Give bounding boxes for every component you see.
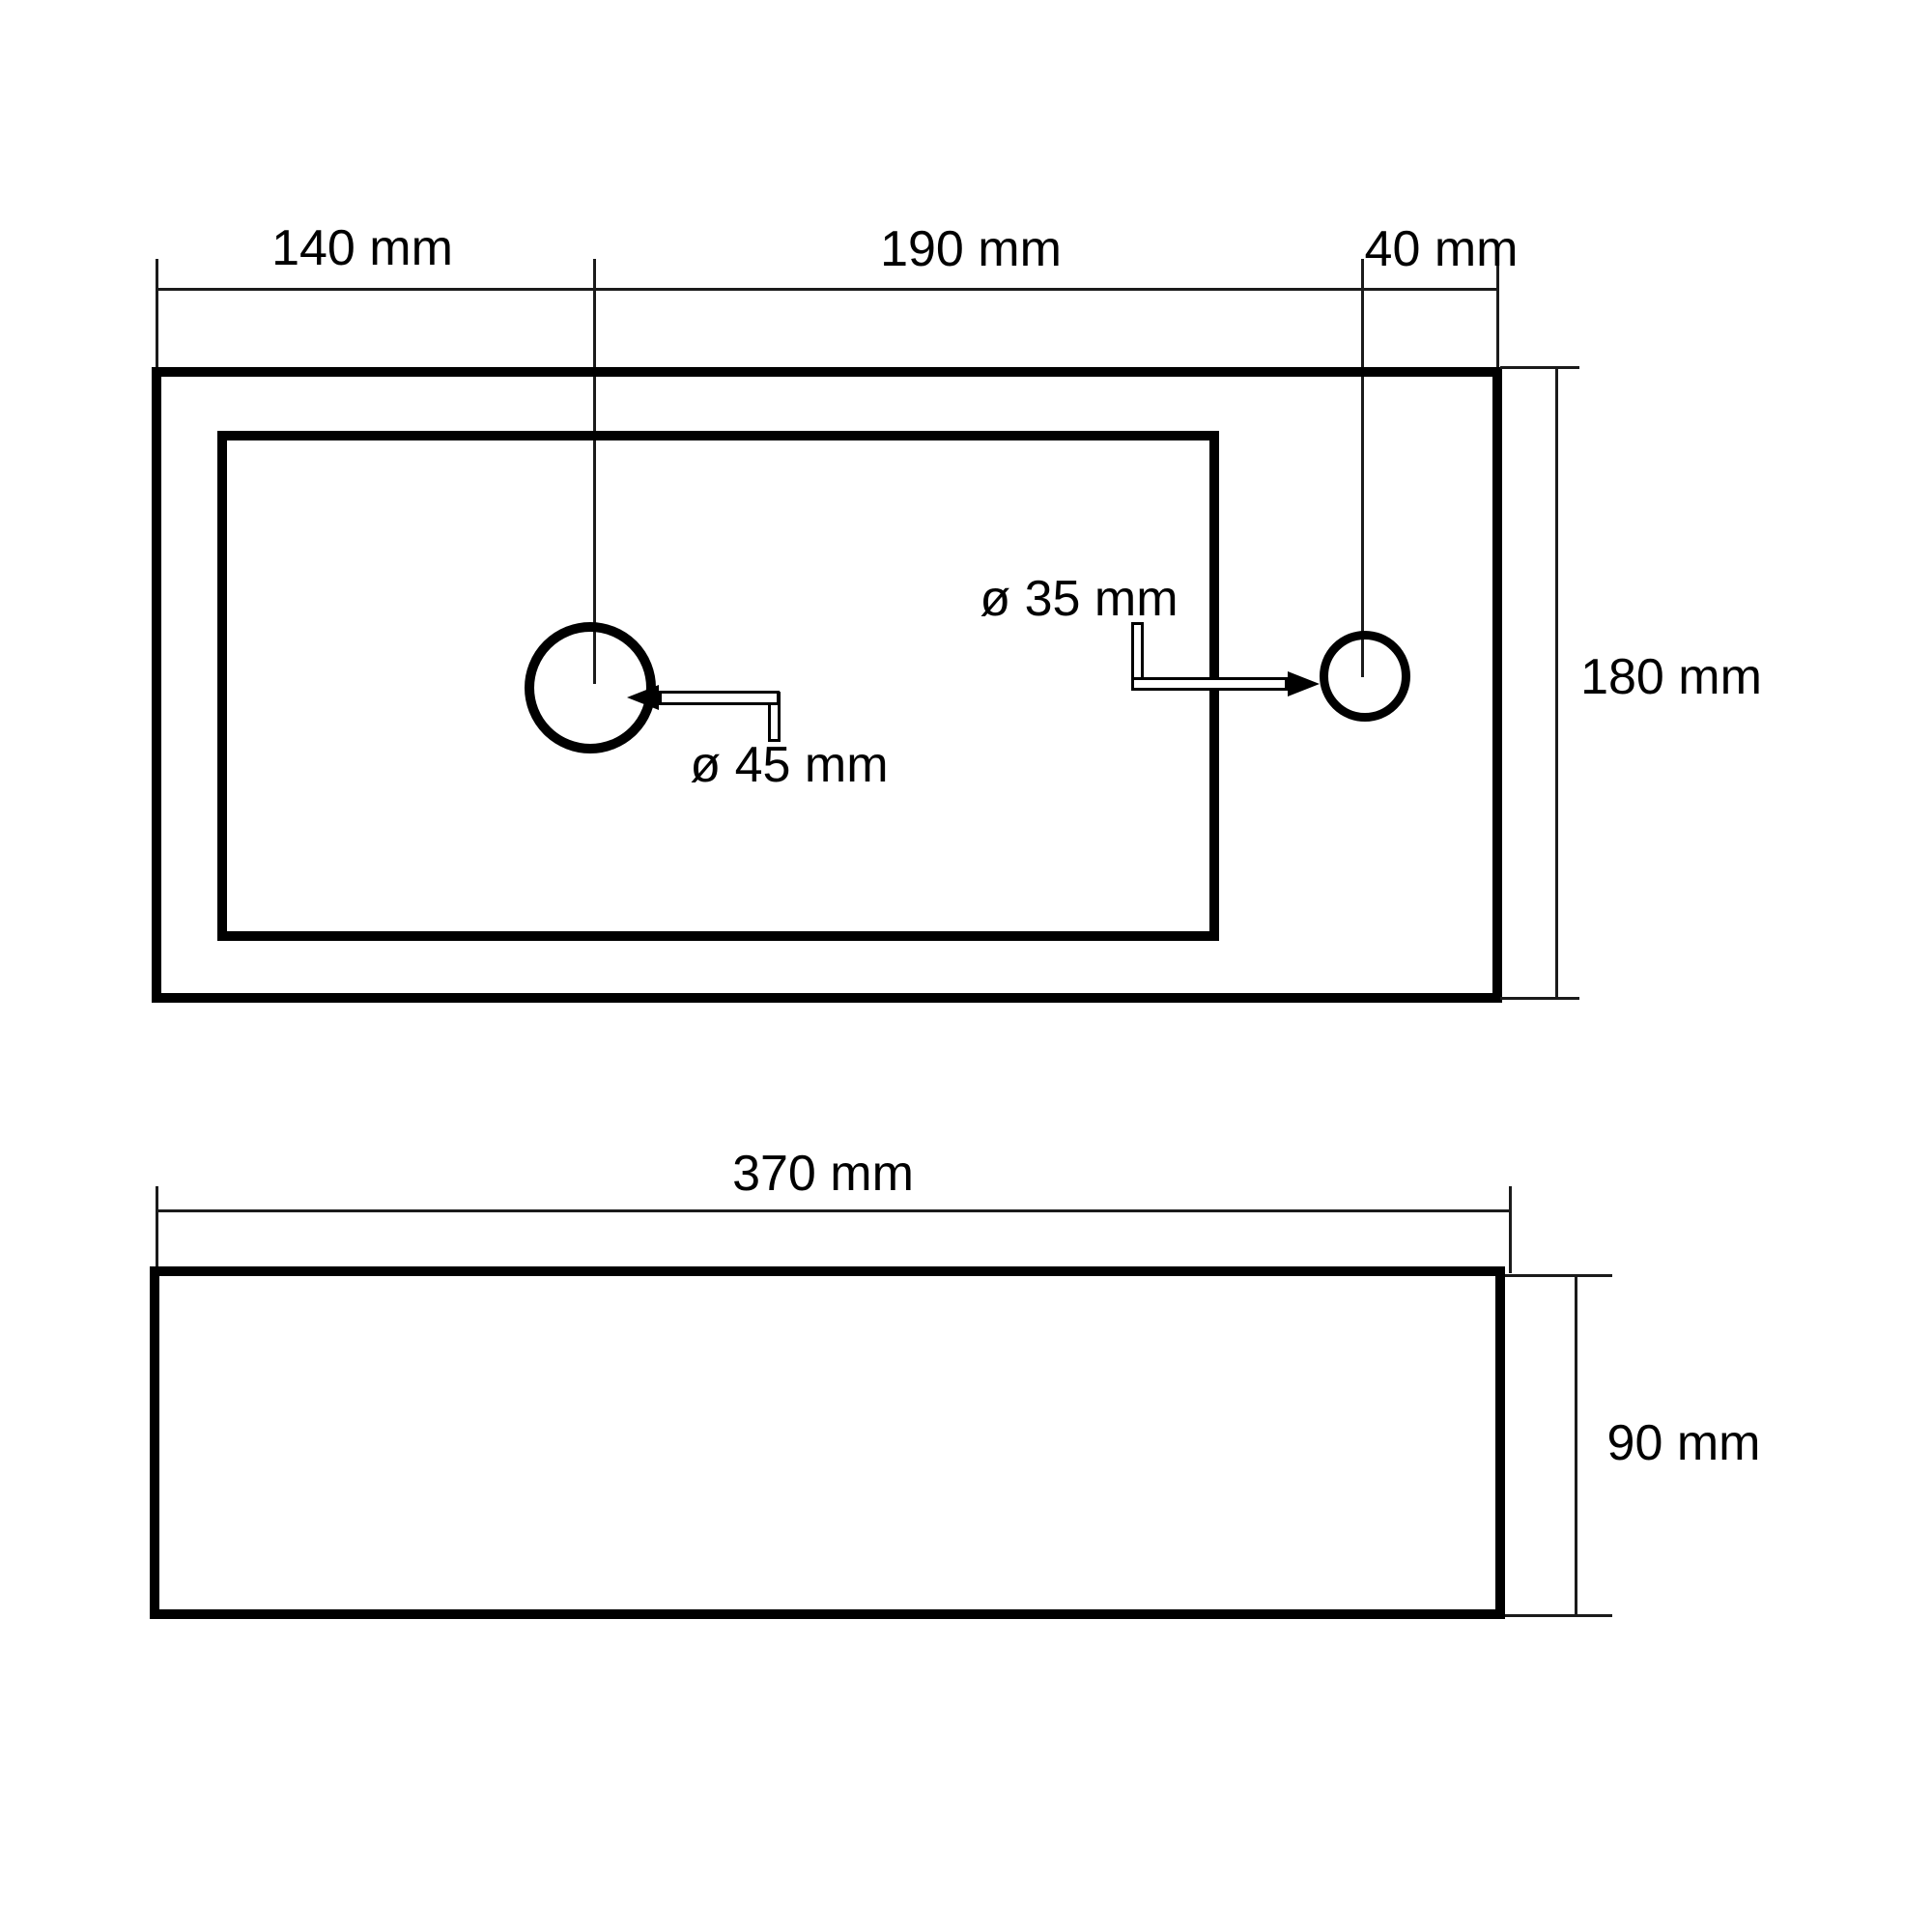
tap-hole-label: ø 35 mm: [980, 574, 1178, 624]
dimension-line-90: [1575, 1276, 1577, 1616]
dimension-line-370: [156, 1209, 1512, 1212]
dimension-label-40mm: 40 mm: [1365, 224, 1519, 274]
sink-front-outline: [150, 1266, 1505, 1619]
drain-leader-arrowhead-icon: [627, 685, 659, 710]
tick-90-bottom: [1505, 1614, 1612, 1617]
extension-line-left-edge: [156, 259, 158, 372]
drain-hole-label: ø 45 mm: [690, 740, 888, 790]
top-dimension-line: [156, 288, 1499, 291]
drain-leader-horizontal-shaft: [659, 691, 780, 705]
tick-180-top: [1500, 366, 1579, 369]
dimension-label-370mm: 370 mm: [732, 1149, 914, 1199]
tick-90-top: [1505, 1274, 1612, 1277]
technical-drawing-canvas: 140 mm 190 mm 40 mm ø 45 mm ø 35 mm 180 …: [0, 0, 1932, 1932]
extension-line-370-right: [1509, 1186, 1512, 1273]
dimension-label-140mm: 140 mm: [271, 223, 453, 273]
tap-leader-horizontal-shaft: [1131, 677, 1288, 691]
dimension-label-190mm: 190 mm: [880, 224, 1062, 274]
tick-180-bottom: [1500, 997, 1579, 1000]
dimension-line-180: [1555, 369, 1558, 999]
tap-leader-arrowhead-icon: [1288, 671, 1320, 696]
extension-line-370-left: [156, 1186, 158, 1273]
dimension-label-180mm: 180 mm: [1580, 652, 1762, 702]
tap-hole-circle: [1320, 631, 1410, 722]
dimension-label-90mm: 90 mm: [1607, 1418, 1761, 1468]
sink-basin-outline: [217, 431, 1219, 941]
